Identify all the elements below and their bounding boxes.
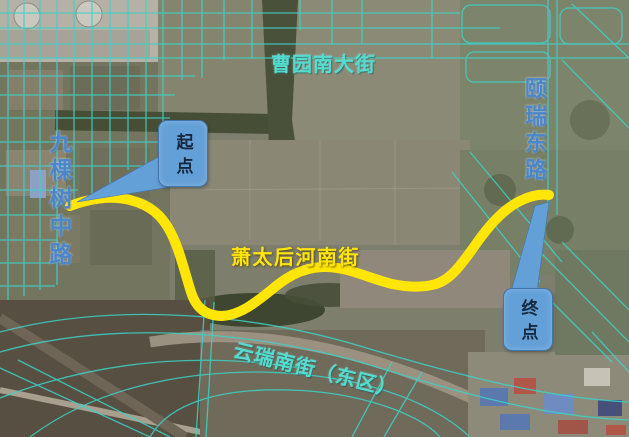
label-right-road: 颐瑞东路 [518, 77, 550, 185]
start-callout: 起点 [158, 120, 208, 187]
end-callout: 终点 [503, 288, 553, 351]
start-callout-label: 起点 [175, 133, 192, 181]
label-left-road: 九棵树中路 [42, 130, 76, 270]
label-top-street: 曹园南大街 [271, 48, 376, 77]
label-center-street: 萧太后河南街 [231, 241, 360, 270]
end-callout-label: 终点 [520, 299, 537, 347]
satellite-map: 曹园南大街 九棵树中路 颐瑞东路 萧太后河南街 云瑞南街（东区） 起点 终点 [0, 0, 629, 437]
